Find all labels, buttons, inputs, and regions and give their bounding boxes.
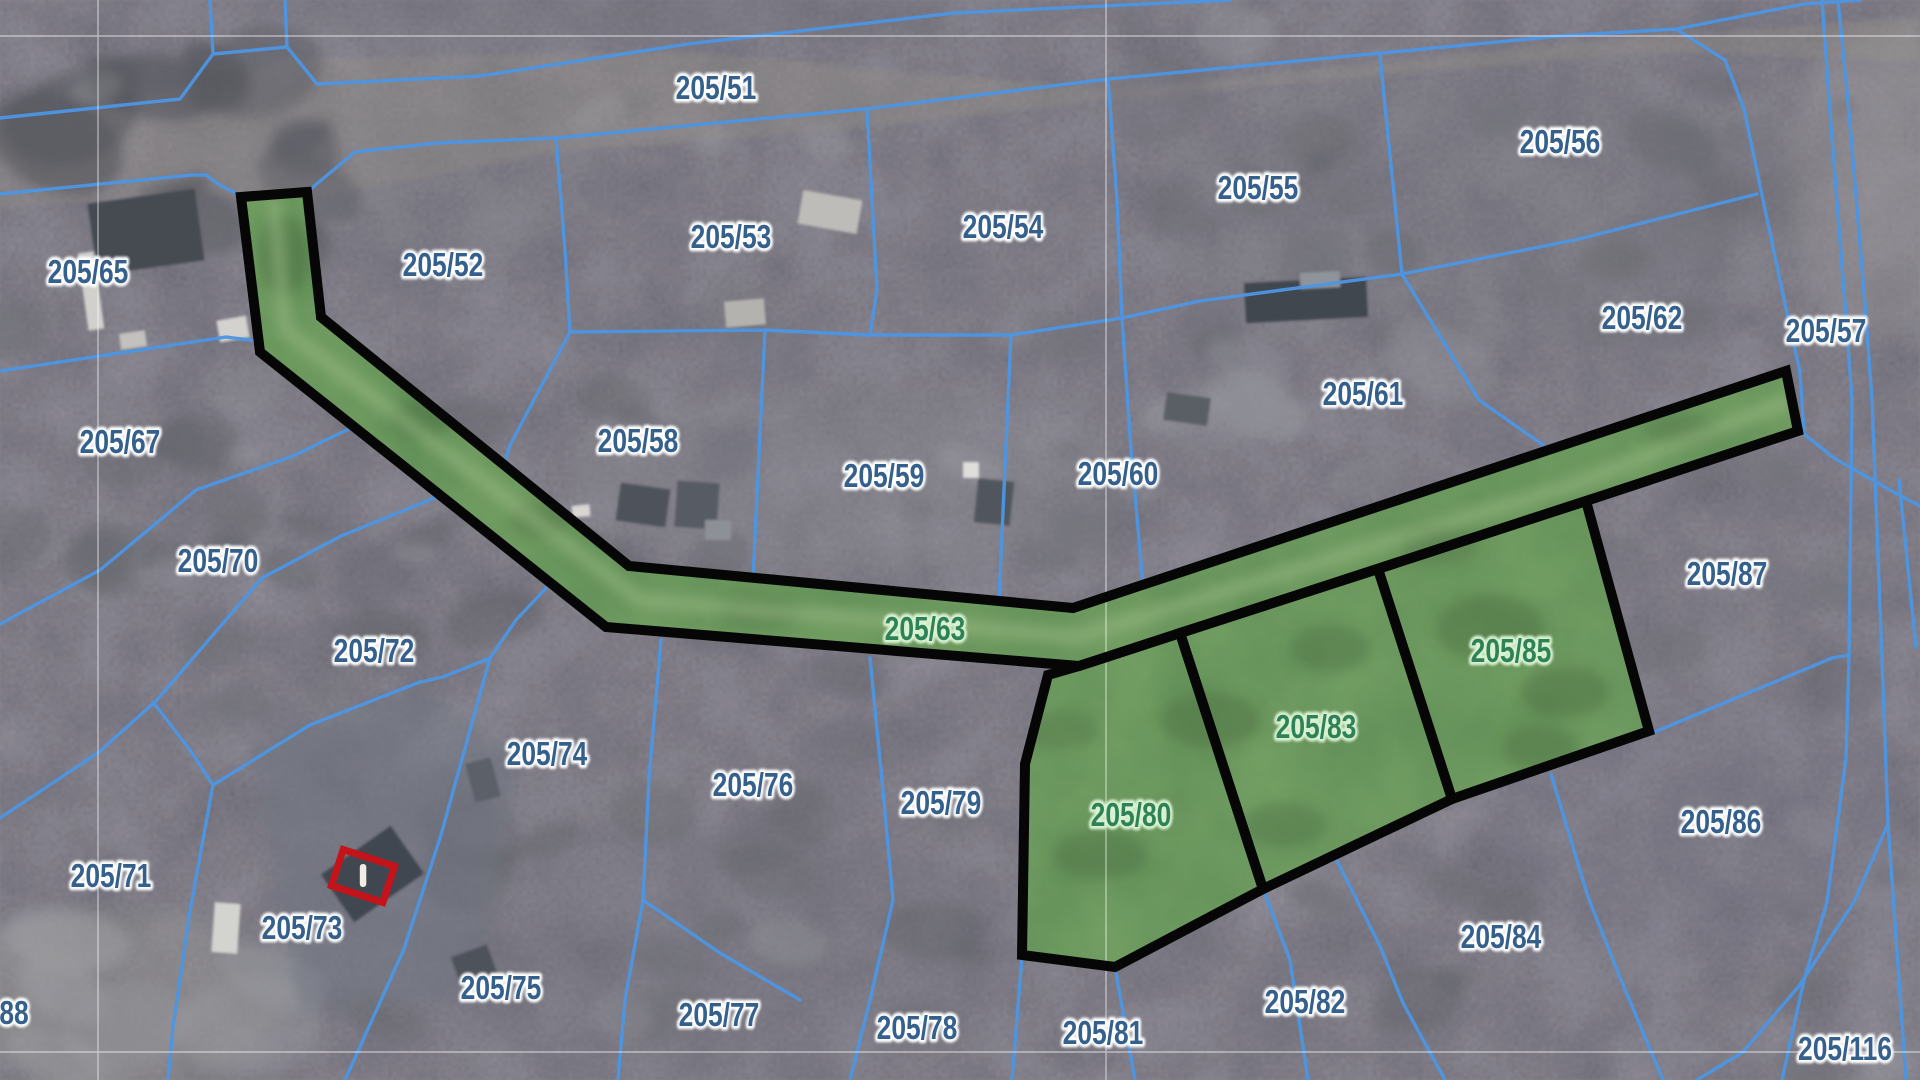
svg-text:205/55: 205/55 bbox=[1218, 170, 1299, 206]
svg-text:205/72: 205/72 bbox=[334, 633, 415, 669]
svg-text:205/76: 205/76 bbox=[713, 767, 794, 803]
svg-text:205/73: 205/73 bbox=[262, 910, 343, 946]
svg-text:205/62: 205/62 bbox=[1602, 300, 1683, 336]
svg-text:205/78: 205/78 bbox=[877, 1010, 958, 1046]
svg-text:205/54: 205/54 bbox=[963, 209, 1044, 245]
svg-text:205/67: 205/67 bbox=[80, 424, 161, 460]
svg-text:205/56: 205/56 bbox=[1520, 124, 1601, 160]
svg-text:88: 88 bbox=[0, 995, 29, 1031]
svg-text:205/83: 205/83 bbox=[1276, 709, 1357, 745]
svg-text:205/82: 205/82 bbox=[1265, 984, 1346, 1020]
svg-text:205/85: 205/85 bbox=[1471, 633, 1552, 669]
svg-text:205/63: 205/63 bbox=[885, 611, 966, 647]
svg-text:205/80: 205/80 bbox=[1091, 797, 1172, 833]
svg-text:205/65: 205/65 bbox=[48, 254, 129, 290]
svg-text:205/74: 205/74 bbox=[507, 736, 588, 772]
svg-text:205/57: 205/57 bbox=[1786, 313, 1867, 349]
svg-text:205/51: 205/51 bbox=[676, 70, 757, 106]
svg-text:205/77: 205/77 bbox=[679, 997, 760, 1033]
svg-text:205/71: 205/71 bbox=[71, 858, 152, 894]
svg-text:205/84: 205/84 bbox=[1461, 919, 1542, 955]
svg-text:205/81: 205/81 bbox=[1063, 1015, 1144, 1051]
svg-text:205/116: 205/116 bbox=[1798, 1031, 1892, 1067]
svg-text:205/87: 205/87 bbox=[1687, 556, 1768, 592]
svg-text:205/86: 205/86 bbox=[1681, 804, 1762, 840]
svg-text:205/58: 205/58 bbox=[598, 423, 679, 459]
svg-text:205/52: 205/52 bbox=[403, 247, 484, 283]
svg-text:205/70: 205/70 bbox=[178, 543, 259, 579]
svg-text:205/59: 205/59 bbox=[844, 458, 925, 494]
svg-text:205/60: 205/60 bbox=[1078, 456, 1159, 492]
svg-text:205/75: 205/75 bbox=[461, 970, 542, 1006]
svg-text:205/79: 205/79 bbox=[901, 785, 982, 821]
svg-text:205/61: 205/61 bbox=[1323, 376, 1404, 412]
svg-text:205/53: 205/53 bbox=[691, 219, 772, 255]
